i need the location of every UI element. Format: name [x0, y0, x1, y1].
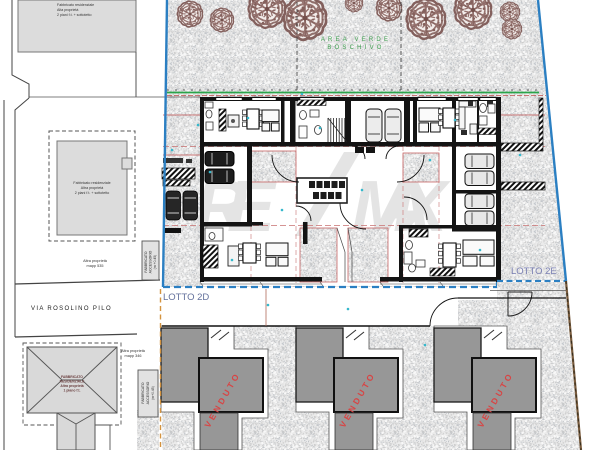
svg-text:Alta proprietà: Alta proprietà — [57, 8, 78, 12]
svg-text:VIA ROSOLINO PILO: VIA ROSOLINO PILO — [31, 306, 112, 312]
svg-text:1 piano f.t.: 1 piano f.t. — [64, 389, 81, 393]
svg-text:Fabbricato residenziale: Fabbricato residenziale — [57, 3, 94, 7]
svg-text:ACCESSORIO: ACCESSORIO — [146, 381, 150, 404]
svg-text:LOTTO 2D: LOTTO 2D — [163, 292, 209, 303]
svg-text:(m+0.45): (m+0.45) — [151, 386, 155, 400]
svg-text:ACCESSORIO: ACCESSORIO — [149, 250, 153, 273]
svg-text:FABBRICATO: FABBRICATO — [141, 382, 145, 404]
svg-text:FABBRICATO: FABBRICATO — [144, 251, 148, 273]
svg-text:LOTTO 2E: LOTTO 2E — [511, 266, 557, 277]
svg-text:FABBRICATO: FABBRICATO — [61, 375, 83, 379]
svg-text:BOSCHIVO: BOSCHIVO — [327, 45, 384, 51]
svg-text:2 piani f.t. + sottotetto: 2 piani f.t. + sottotetto — [57, 13, 91, 17]
svg-text:Fabbricato residenziale: Fabbricato residenziale — [73, 181, 110, 185]
svg-text:Altra proprietà: Altra proprietà — [81, 186, 104, 190]
svg-text:mapp 346: mapp 346 — [125, 354, 142, 358]
svg-text:Altra proprietà: Altra proprietà — [60, 384, 83, 388]
svg-text:(m +0.45): (m +0.45) — [153, 255, 157, 270]
svg-text:2 piani f.t. + sottotetto: 2 piani f.t. + sottotetto — [75, 191, 109, 195]
svg-text:AREA VERDE: AREA VERDE — [321, 37, 391, 43]
svg-text:Altra proprietà: Altra proprietà — [121, 349, 146, 353]
svg-text:Altra proprietà: Altra proprietà — [83, 259, 108, 263]
svg-text:RESIDENZIALE: RESIDENZIALE — [60, 380, 86, 384]
svg-text:mapp 535: mapp 535 — [87, 264, 104, 268]
